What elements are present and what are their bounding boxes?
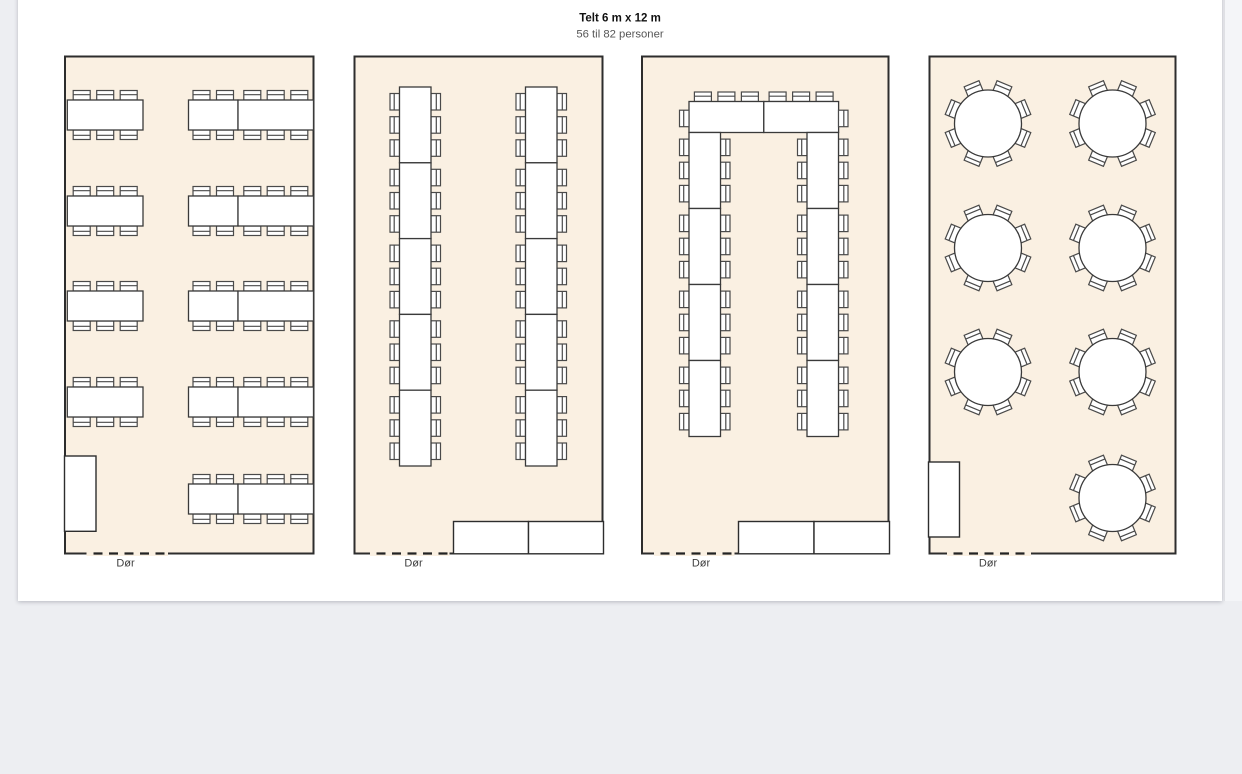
svg-text:Dør: Dør (979, 558, 998, 570)
svg-text:Dør: Dør (404, 558, 423, 570)
svg-text:Dør: Dør (692, 558, 711, 570)
svg-text:56 til 82 personer: 56 til 82 personer (576, 28, 664, 40)
svg-text:Dør: Dør (116, 558, 135, 570)
svg-text:Telt 6 m x 12 m: Telt 6 m x 12 m (579, 13, 661, 25)
